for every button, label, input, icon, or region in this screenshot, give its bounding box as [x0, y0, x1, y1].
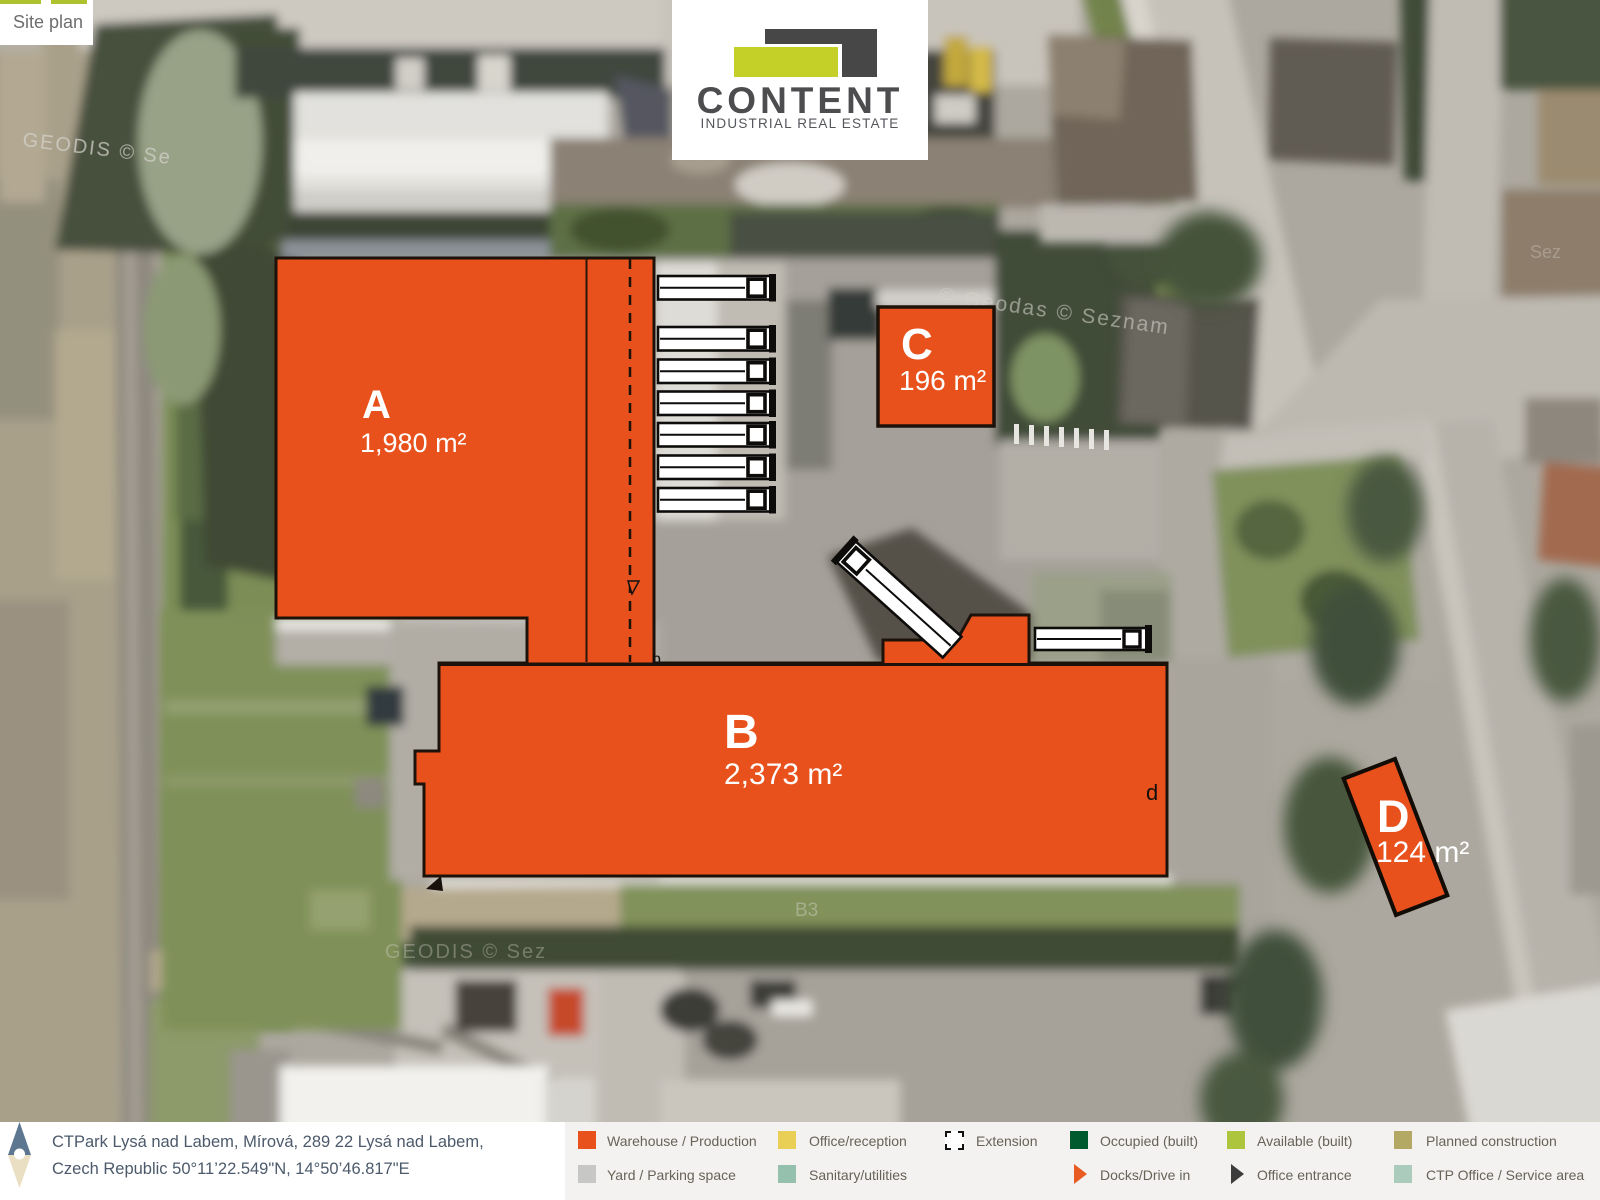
svg-text:b: b [652, 651, 661, 668]
svg-text:A: A [362, 383, 391, 427]
svg-text:GEODIS © Sez: GEODIS © Sez [385, 941, 547, 963]
svg-text:196 m²: 196 m² [899, 365, 986, 396]
svg-text:Sez: Sez [1530, 242, 1561, 262]
svg-text:B: B [724, 706, 759, 759]
svg-text:d: d [1146, 780, 1158, 805]
svg-text:D: D [1377, 791, 1410, 842]
svg-text:124 m²: 124 m² [1376, 836, 1469, 869]
svg-text:B3: B3 [795, 900, 818, 921]
svg-text:2,373 m²: 2,373 m² [724, 758, 842, 791]
svg-text:1,980 m²: 1,980 m² [360, 428, 467, 458]
svg-text:C: C [901, 320, 933, 369]
